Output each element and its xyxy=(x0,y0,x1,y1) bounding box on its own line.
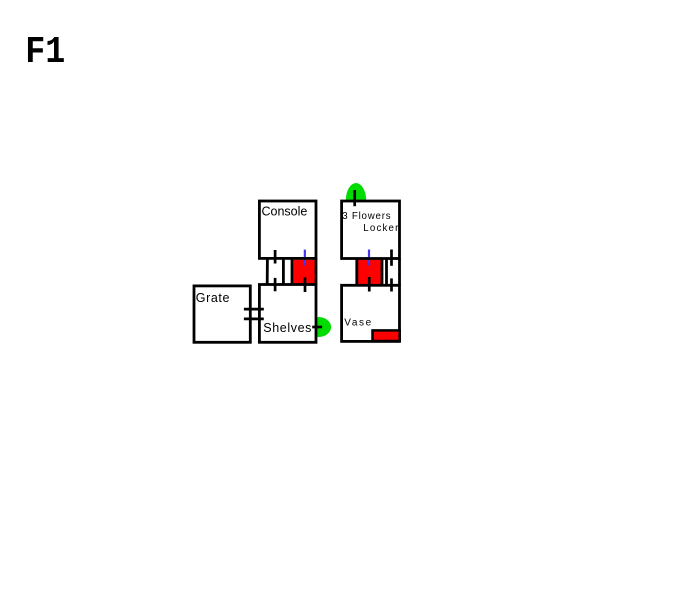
svg-text:3 Flowers: 3 Flowers xyxy=(342,211,391,222)
svg-text:F1: F1 xyxy=(25,31,65,74)
svg-text:Grate: Grate xyxy=(196,291,230,305)
svg-text:Console: Console xyxy=(262,205,308,219)
svg-text:Locker: Locker xyxy=(363,223,399,234)
svg-text:Vase: Vase xyxy=(344,318,372,329)
svg-text:Shelves: Shelves xyxy=(263,321,312,335)
